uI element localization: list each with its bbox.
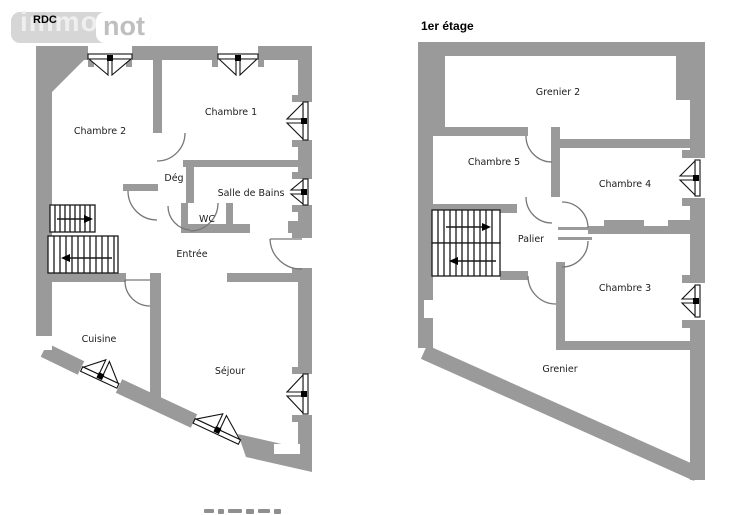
room-label-grenier: Grenier [542, 364, 577, 375]
room-label-entree: Entrée [176, 249, 207, 260]
room-label-grenier-2: Grenier 2 [536, 87, 580, 98]
room-label-chambre-1: Chambre 1 [205, 107, 257, 118]
door-arc-icon [562, 202, 588, 228]
window-icon [287, 102, 308, 140]
door-arc-icon [270, 239, 302, 269]
window-icon [193, 404, 247, 444]
staircase-rdc-icon [48, 205, 118, 273]
door-arc-icon [562, 241, 588, 267]
window-icon [81, 352, 126, 388]
floor-plan-rdc: Chambre 2 Chambre 1 Dég Salle de Bains W… [36, 46, 312, 472]
staircase-etage1-icon [432, 210, 500, 276]
room-label-chambre-3: Chambre 3 [599, 283, 651, 294]
logo-immo-text: immo [20, 6, 99, 38]
floor-plan-etage1: Grenier 2 Chambre 5 Chambre 4 Palier Cha… [418, 42, 705, 480]
door-arc-icon [125, 280, 150, 306]
floorplan-page: Chambre 2 Chambre 1 Dég Salle de Bains W… [0, 0, 750, 515]
door-arc-icon [128, 191, 157, 220]
door-arc-icon [157, 133, 185, 161]
room-label-salle-de-bains: Salle de Bains [218, 188, 285, 199]
plan-title-rdc: RDC [33, 14, 57, 26]
plan-title-etage1: 1er étage [421, 19, 474, 33]
window-icon [287, 374, 308, 414]
door-arc-icon [526, 197, 552, 223]
room-label-palier: Palier [518, 234, 544, 245]
bottom-wall-notch [274, 444, 300, 454]
room-label-cuisine: Cuisine [82, 334, 117, 345]
door-arc-icon [526, 136, 552, 162]
room-label-deg: Dég [164, 173, 183, 184]
room-label-sejour: Séjour [215, 366, 245, 377]
window-icon [680, 160, 700, 196]
window-icon [291, 179, 308, 205]
logo-not-box: not [96, 12, 152, 43]
room-label-wc: WC [199, 214, 215, 225]
room-label-chambre-4: Chambre 4 [599, 179, 651, 190]
logo-not-text: not [103, 11, 145, 41]
left-wall-notch [424, 300, 433, 318]
floor-plans-drawing: Chambre 2 Chambre 1 Dég Salle de Bains W… [0, 0, 750, 515]
room-label-chambre-2: Chambre 2 [74, 126, 126, 137]
door-arc-icon [528, 276, 556, 304]
window-icon [682, 285, 700, 317]
window-icon [218, 54, 258, 75]
left-wall-opening [36, 338, 52, 350]
room-label-chambre-5: Chambre 5 [468, 157, 520, 168]
clipped-text-fragment [204, 509, 296, 515]
window-icon [88, 54, 132, 75]
